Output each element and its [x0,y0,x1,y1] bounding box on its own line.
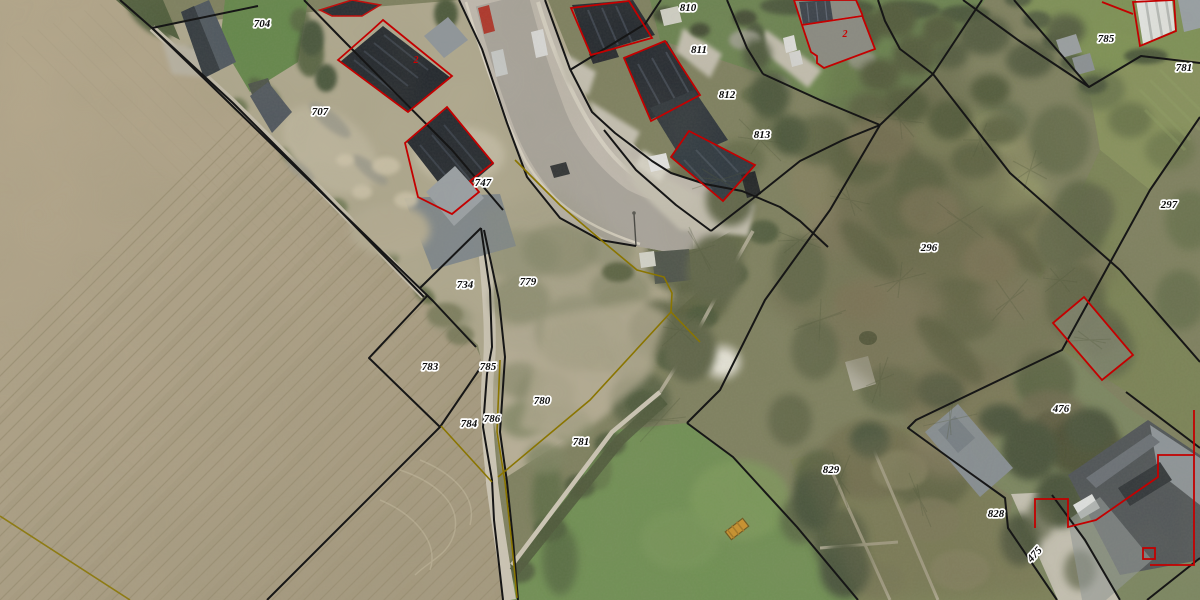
svg-text:781: 781 [1176,62,1193,74]
svg-text:785: 785 [1098,33,1115,45]
svg-text:779: 779 [520,276,537,288]
svg-text:828: 828 [988,508,1005,520]
svg-text:785: 785 [480,361,497,373]
svg-text:476: 476 [1052,403,1070,415]
svg-text:297: 297 [1160,199,1178,211]
svg-text:786: 786 [484,413,501,425]
svg-text:747: 747 [475,177,492,189]
svg-text:296: 296 [920,242,938,254]
svg-text:810: 810 [680,2,697,14]
svg-text:811: 811 [691,44,707,56]
svg-text:783: 783 [422,361,439,373]
svg-text:780: 780 [534,395,551,407]
svg-text:2: 2 [413,55,419,66]
svg-text:812: 812 [719,89,736,101]
svg-text:829: 829 [823,464,840,476]
svg-text:2: 2 [842,29,848,40]
svg-text:707: 707 [312,106,329,118]
svg-text:734: 734 [457,279,474,291]
svg-text:704: 704 [254,18,271,30]
svg-text:781: 781 [573,436,590,448]
svg-text:784: 784 [461,418,478,430]
svg-text:813: 813 [754,129,771,141]
